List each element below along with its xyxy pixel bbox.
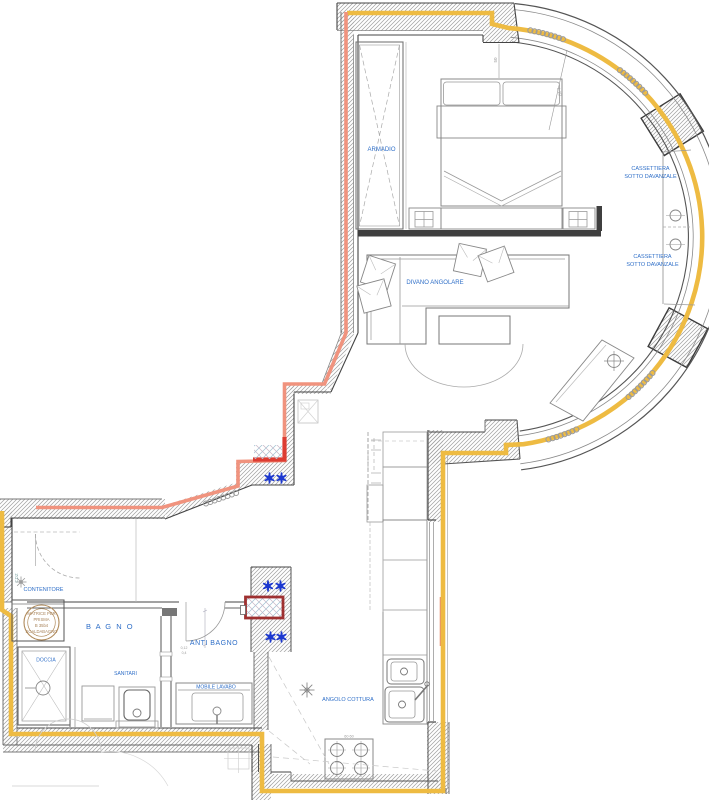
svg-text:CASSETTIERA: CASSETTIERA (631, 166, 670, 172)
svg-text:CDZ: CDZ (14, 573, 19, 582)
svg-text:ARMADIO: ARMADIO (367, 147, 395, 153)
svg-text:CONTENITORE: CONTENITORE (24, 587, 64, 593)
svg-text:50: 50 (493, 57, 498, 63)
svg-text:0,4: 0,4 (182, 651, 187, 655)
svg-text:MOBILE LAVABO: MOBILE LAVABO (196, 685, 236, 691)
svg-text:CASSETTIERA: CASSETTIERA (633, 254, 672, 260)
svg-text:SOTTO DAVANZALE: SOTTO DAVANZALE (624, 174, 677, 180)
svg-text:ANGOLO COTTURA: ANGOLO COTTURA (322, 697, 374, 703)
svg-text:SANITARI: SANITARI (114, 671, 137, 677)
svg-text:MATRICE PER: MATRICE PER (27, 611, 55, 616)
svg-text:SOTTO DAVANZALE: SOTTO DAVANZALE (626, 262, 679, 268)
svg-text:PRISMA: PRISMA (33, 617, 49, 622)
svg-text:B 35b4: B 35b4 (35, 623, 49, 628)
svg-text:DIVANO ANGOLARE: DIVANO ANGOLARE (406, 280, 463, 286)
svg-text:60 60: 60 60 (344, 735, 354, 739)
svg-text:DOCCIA: DOCCIA (36, 658, 56, 664)
svg-text:B A G N O: B A G N O (86, 622, 134, 631)
svg-text:0,12: 0,12 (181, 646, 188, 650)
svg-text:SCALDABAGNO: SCALDABAGNO (26, 629, 59, 634)
svg-text:ANTI BAGNO: ANTI BAGNO (190, 640, 238, 647)
